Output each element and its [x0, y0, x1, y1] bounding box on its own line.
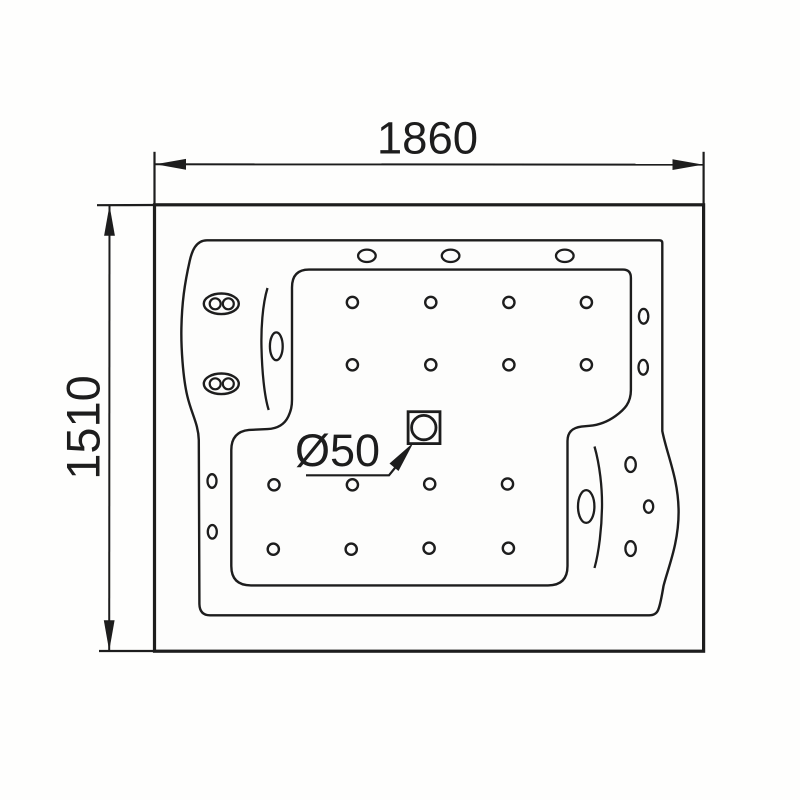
svg-text:1860: 1860 — [377, 113, 478, 164]
svg-text:1510: 1510 — [57, 375, 110, 480]
svg-text:Ø50: Ø50 — [295, 425, 380, 476]
